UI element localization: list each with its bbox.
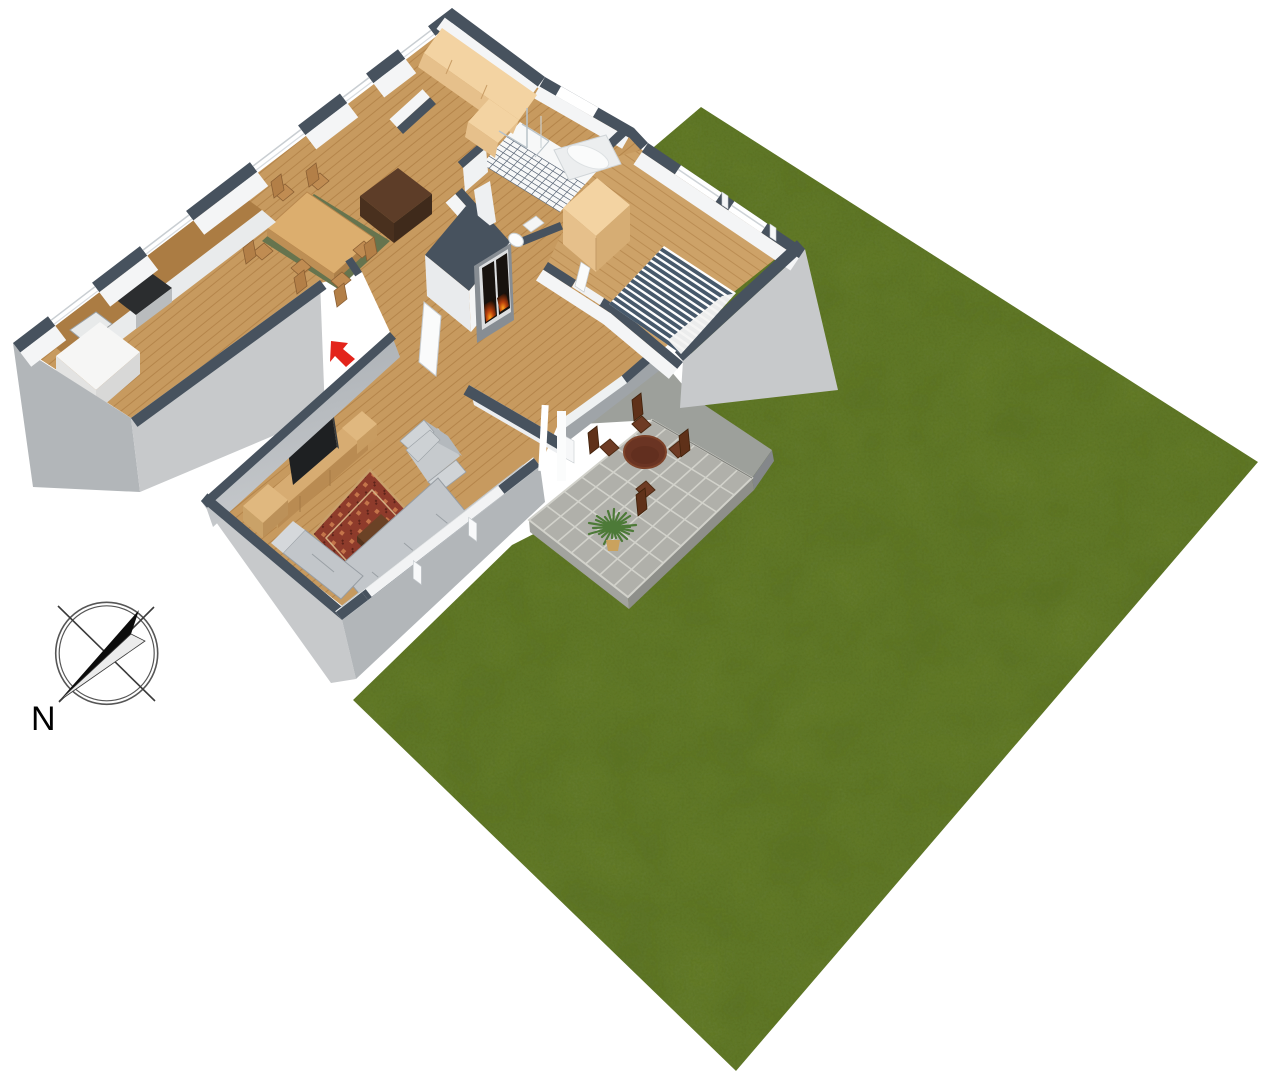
svg-text:N: N [31,700,56,738]
